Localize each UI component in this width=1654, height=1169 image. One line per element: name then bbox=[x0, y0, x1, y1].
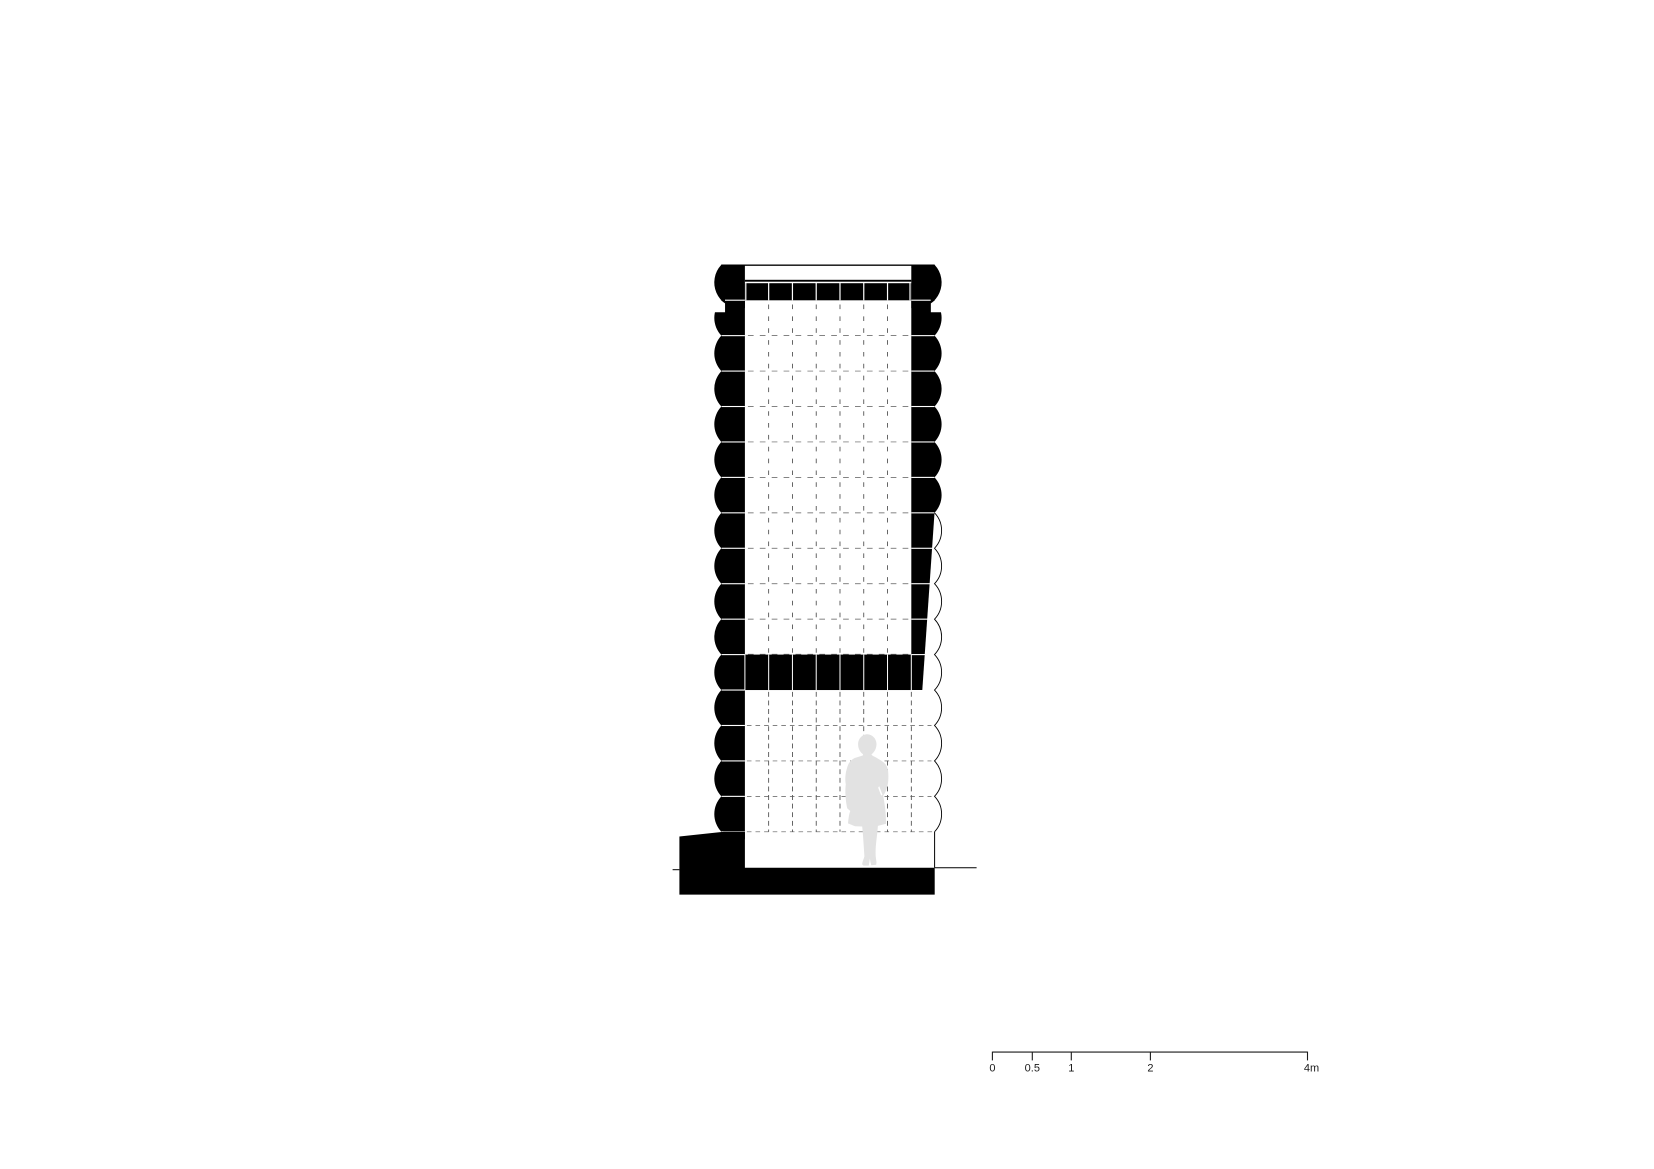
svg-text:0: 0 bbox=[989, 1062, 995, 1074]
svg-text:0.5: 0.5 bbox=[1025, 1062, 1040, 1074]
svg-text:4m: 4m bbox=[1304, 1062, 1319, 1074]
svg-text:1: 1 bbox=[1068, 1062, 1074, 1074]
svg-text:2: 2 bbox=[1147, 1062, 1153, 1074]
